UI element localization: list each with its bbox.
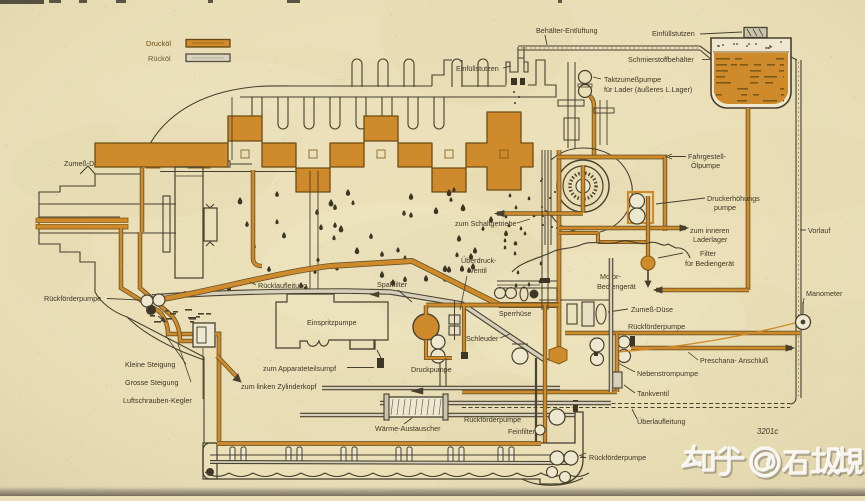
svg-text:Nebenstrompumpe: Nebenstrompumpe [637,369,698,378]
svg-text:Einspritzpumpe: Einspritzpumpe [307,318,357,327]
svg-text:Filter: Filter [700,249,717,258]
svg-text:Behälter-Entlüftung: Behälter-Entlüftung [536,26,598,35]
svg-text:Bediengerät: Bediengerät [597,282,636,291]
svg-text:Einfüllstutzen: Einfüllstutzen [652,29,695,38]
svg-text:Ölpumpe: Ölpumpe [691,161,720,170]
svg-text:zum Schaltgetriebe: zum Schaltgetriebe [455,219,517,228]
svg-text:Spaltfilter: Spaltfilter [377,280,408,289]
svg-text:zum linken Zylinderkopf: zum linken Zylinderkopf [241,382,317,391]
svg-text:Druckerhöhungs: Druckerhöhungs [707,194,760,203]
svg-text:Laderlager: Laderlager [693,235,728,244]
svg-text:Kleine Steigung: Kleine Steigung [125,360,175,369]
svg-text:Schleuder: Schleuder [466,334,499,343]
svg-text:Manometer: Manometer [806,289,843,298]
svg-text:Tankventil: Tankventil [637,389,669,398]
svg-text:Luftschrauben-Kegler: Luftschrauben-Kegler [123,396,192,405]
svg-text:Rückförderpumpe: Rückförderpumpe [628,322,685,331]
svg-text:Feinfilter: Feinfilter [508,429,536,436]
svg-text:Rücköl: Rücköl [148,54,171,63]
svg-text:Sperrhüse: Sperrhüse [499,311,531,318]
svg-text:Überlaufleitung: Überlaufleitung [637,417,685,426]
svg-text:Zumeß-Düse: Zumeß-Düse [631,305,673,314]
svg-text:Wärme-Austauscher: Wärme-Austauscher [375,424,441,433]
svg-text:Grosse Steigung: Grosse Steigung [125,378,179,387]
svg-text:Taktzumeßpumpe: Taktzumeßpumpe [604,75,661,84]
svg-text:Einfüllstutzen: Einfüllstutzen [456,64,499,73]
svg-text:Fahrgestell-: Fahrgestell- [688,152,727,161]
svg-text:Vorlauf: Vorlauf [808,226,830,235]
svg-text:Rückförderpumpe: Rückförderpumpe [589,453,646,462]
svg-text:Rückförderpumpe: Rückförderpumpe [464,415,521,424]
svg-text:3201c: 3201c [757,427,778,436]
svg-text:Preschana- Anschluß: Preschana- Anschluß [700,356,769,365]
svg-text:Schmierstoffbehälter: Schmierstoffbehälter [628,55,694,64]
svg-text:ventil: ventil [470,266,487,275]
svg-text:Rücklaufleitung: Rücklaufleitung [258,281,307,290]
svg-text:Überdruck-: Überdruck- [461,256,497,265]
svg-text:Drucköl: Drucköl [146,39,171,48]
svg-text:für Lader (äußeres L.Lager): für Lader (äußeres L.Lager) [604,85,692,94]
svg-text:zum inneren: zum inneren [690,226,730,235]
svg-text:Rückförderpumpe: Rückförderpumpe [44,294,101,303]
svg-text:zum Apparateteilsumpf: zum Apparateteilsumpf [263,364,336,373]
svg-text:pumpe: pumpe [714,203,736,212]
svg-text:für Bediengerät: für Bediengerät [685,259,734,268]
